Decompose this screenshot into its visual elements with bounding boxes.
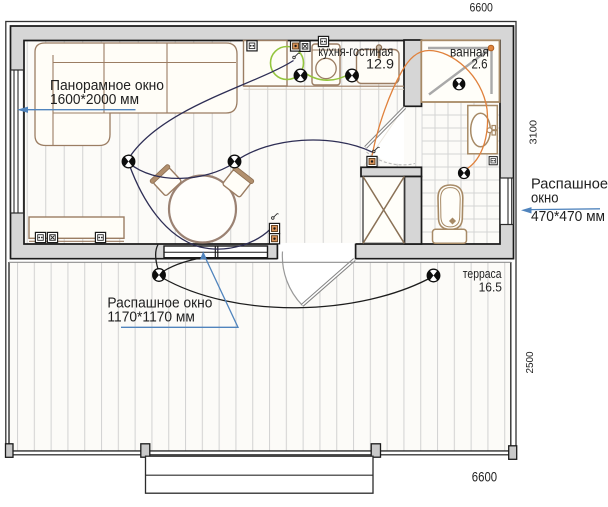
svg-text:1600*2000 мм: 1600*2000 мм: [50, 92, 139, 108]
svg-text:2500: 2500: [525, 351, 536, 373]
svg-text:окно: окно: [531, 190, 559, 206]
svg-text:6600: 6600: [470, 1, 494, 15]
svg-text:3100: 3100: [527, 120, 539, 145]
svg-text:2.6: 2.6: [472, 57, 488, 72]
svg-text:12.9: 12.9: [366, 56, 394, 72]
svg-text:терраса: терраса: [463, 266, 502, 281]
svg-text:1170*1170 мм: 1170*1170 мм: [107, 309, 194, 325]
svg-text:6600: 6600: [472, 470, 498, 485]
svg-text:16.5: 16.5: [479, 280, 502, 295]
svg-text:470*470 мм: 470*470 мм: [531, 209, 605, 225]
